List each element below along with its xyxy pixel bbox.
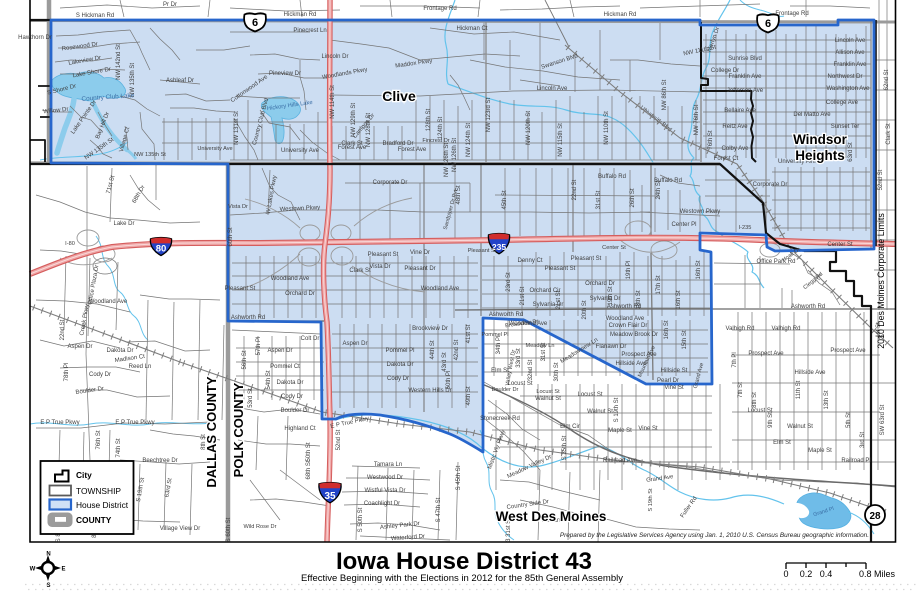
svg-text:2010 Des Moines Corporate Limi: 2010 Des Moines Corporate Limits [876,213,886,349]
svg-text:Flanawn Dr: Flanawn Dr [596,344,627,350]
svg-text:16th St: 16th St [676,290,682,309]
svg-text:35: 35 [324,491,336,502]
svg-text:Ashworth Rd: Ashworth Rd [489,312,523,318]
svg-text:Ashworth Rd: Ashworth Rd [231,315,265,321]
svg-text:Franklin Ave: Franklin Ave [834,62,868,68]
svg-text:NW 114th St: NW 114th St [330,85,336,119]
svg-text:Valhigh Rd: Valhigh Rd [772,326,801,332]
svg-text:Maple St: Maple St [608,428,632,434]
svg-text:DALLAS COUNTY: DALLAS COUNTY [204,376,219,488]
svg-text:21st St: 21st St [556,290,562,309]
svg-text:Clark St: Clark St [349,268,371,274]
svg-text:Walnut St: Walnut St [587,409,613,415]
svg-text:S 19th St: S 19th St [614,397,620,422]
svg-text:Village View Dr: Village View Dr [160,526,200,532]
svg-text:0.4: 0.4 [820,569,833,579]
svg-text:Clark St: Clark St [886,123,892,145]
svg-text:Vine St: Vine St [638,426,658,432]
svg-text:Valhigh Rd: Valhigh Rd [726,326,755,332]
svg-text:49th St: 49th St [466,386,472,405]
svg-text:Lincoln Ave: Lincoln Ave [835,38,866,44]
svg-text:Corporate Dr: Corporate Dr [373,180,408,186]
svg-text:31st St: 31st St [596,190,602,209]
svg-text:Beechtree Dr: Beechtree Dr [142,458,177,464]
svg-text:POLK COUNTY: POLK COUNTY [231,382,246,477]
svg-text:West Des Moines: West Des Moines [496,509,607,524]
svg-text:Lincoln Dr: Lincoln Dr [321,54,348,60]
svg-text:Dakota Dr: Dakota Dr [386,362,413,368]
svg-text:Heights: Heights [795,148,845,163]
svg-text:Aspen Dr: Aspen Dr [267,348,292,354]
svg-text:Boulder Dr: Boulder Dr [281,408,310,414]
svg-text:W: W [30,567,36,573]
svg-text:7th St: 7th St [738,382,744,398]
svg-text:22nd St: 22nd St [60,319,66,340]
svg-text:Meadow Ln: Meadow Ln [526,343,555,349]
svg-text:52nd St: 52nd St [878,169,884,190]
svg-text:College Ave: College Ave [826,100,859,106]
svg-text:Frontage Rd: Frontage Rd [775,11,808,17]
svg-text:COUNTY: COUNTY [76,515,112,525]
svg-text:City: City [76,470,92,480]
svg-text:E P True Pkwy: E P True Pkwy [40,420,79,426]
svg-text:Wild Rose Dr: Wild Rose Dr [244,524,277,530]
svg-text:Center St: Center St [602,245,626,251]
svg-text:Hickman Ct: Hickman Ct [456,26,487,32]
svg-text:Boulder Dr: Boulder Dr [492,387,519,393]
svg-text:50th Pl: 50th Pl [446,371,452,390]
svg-text:Orchard Dr: Orchard Dr [585,281,615,287]
svg-text:Westown Pkwy: Westown Pkwy [680,209,721,215]
svg-text:Center Pl: Center Pl [671,222,696,228]
svg-text:43rd St: 43rd St [442,352,448,372]
svg-text:Pleasant Dr: Pleasant Dr [404,266,435,272]
svg-text:Washington Ave: Washington Ave [826,86,870,92]
svg-text:Del Matto Ave: Del Matto Ave [793,112,831,118]
svg-text:Cody Dr: Cody Dr [89,372,111,378]
svg-text:Pleasant St: Pleasant St [571,256,602,262]
svg-text:Hickman Rd: Hickman Rd [284,12,317,18]
svg-text:Brookview Dr: Brookview Dr [412,326,448,332]
svg-text:Pearl Dr: Pearl Dr [657,378,679,384]
svg-text:Westwood Dr: Westwood Dr [367,475,403,481]
svg-text:S 50th St: S 50th St [358,507,364,532]
svg-text:Iowa House District 43: Iowa House District 43 [336,548,592,575]
svg-text:Ashworth Rd: Ashworth Rd [607,304,641,310]
svg-text:Pineview Dr: Pineview Dr [269,71,301,77]
svg-text:E P True Pkwy: E P True Pkwy [115,420,154,426]
svg-text:Pleasant St: Pleasant St [468,248,497,254]
svg-text:Hillside St: Hillside St [661,368,688,374]
svg-text:Pinecrest Ln: Pinecrest Ln [293,28,326,34]
svg-text:Colt Dr: Colt Dr [301,336,320,342]
svg-text:NW 123rd St: NW 123rd St [486,98,492,133]
svg-text:63rd St: 63rd St [848,142,854,162]
svg-text:52nd St: 52nd St [336,429,342,450]
svg-text:Effective Beginning with the E: Effective Beginning with the Elections i… [301,573,623,584]
svg-text:Hillside Ave: Hillside Ave [795,370,827,376]
svg-text:Forest Ave: Forest Ave [398,147,427,153]
svg-text:41st St: 41st St [466,324,472,343]
svg-text:Reitz Ave: Reitz Ave [722,124,748,130]
svg-text:28: 28 [869,511,881,522]
svg-text:76th St: 76th St [96,430,102,449]
svg-text:54th St: 54th St [266,370,272,389]
svg-text:Hickman Rd: Hickman Rd [604,12,637,18]
svg-text:NW 135th St: NW 135th St [134,152,166,158]
svg-text:5th St: 5th St [846,412,852,428]
svg-text:16th St: 16th St [664,320,670,339]
svg-text:45th St: 45th St [502,190,508,209]
svg-text:Ashleaf Dr: Ashleaf Dr [166,78,194,84]
svg-text:128th St: 128th St [426,108,432,131]
svg-text:32nd St: 32nd St [528,359,534,380]
svg-text:Lake Dr: Lake Dr [113,221,134,227]
svg-text:Pleasant St: Pleasant St [225,286,256,292]
svg-text:S Hickman Rd: S Hickman Rd [76,13,114,19]
svg-text:S 45th St: S 45th St [456,465,462,490]
svg-text:62nd St: 62nd St [884,69,890,90]
svg-text:NW 86th St: NW 86th St [662,79,668,110]
svg-text:NW 142nd St: NW 142nd St [116,44,122,80]
svg-text:College Dr: College Dr [711,68,739,74]
svg-text:I-80: I-80 [65,241,75,247]
svg-text:Prospect Ave: Prospect Ave [830,348,866,354]
svg-text:Woodland Ave: Woodland Ave [421,286,460,292]
svg-text:0: 0 [783,569,788,579]
svg-text:E: E [61,567,65,573]
svg-text:Allison Ave: Allison Ave [835,50,865,56]
svg-text:Crown Flair Dr: Crown Flair Dr [609,323,648,329]
svg-text:Sunset Ter: Sunset Ter [831,124,860,130]
svg-text:S 47th St: S 47th St [436,497,442,522]
svg-text:University Ave: University Ave [197,146,232,152]
svg-text:42nd St: 42nd St [454,339,460,360]
svg-text:Pleasant St: Pleasant St [545,266,576,272]
svg-text:University Ave: University Ave [281,148,320,154]
svg-text:Locust St: Locust St [536,389,560,395]
svg-text:74th St: 74th St [116,438,122,457]
svg-text:Woodland Ave: Woodland Ave [89,299,128,305]
svg-text:7th Pl: 7th Pl [732,352,738,367]
svg-text:Woodland Ave: Woodland Ave [271,276,310,282]
svg-text:78th Pl: 78th Pl [64,363,70,382]
svg-text:Vista Dr: Vista Dr [228,204,248,210]
svg-text:I-235: I-235 [739,225,752,231]
svg-text:60th St: 60th St [228,227,234,246]
svg-text:Elm Cir: Elm Cir [560,424,580,430]
svg-text:8th St: 8th St [752,392,758,408]
svg-text:Woodland Ave: Woodland Ave [606,316,645,322]
svg-text:Windsor: Windsor [793,132,848,147]
svg-text:Sylvania Dr: Sylvania Dr [590,296,621,302]
svg-text:50th St: 50th St [306,442,312,461]
svg-text:NW 120th St: NW 120th St [526,111,532,145]
svg-text:TOWNSHIP: TOWNSHIP [76,486,121,496]
svg-text:68th St: 68th St [306,460,312,479]
svg-text:Bellaire Ave: Bellaire Ave [724,108,756,114]
svg-text:6: 6 [252,17,258,29]
svg-text:NW 128th St: NW 128th St [366,113,372,147]
svg-text:21st St: 21st St [520,286,526,305]
svg-text:Pommel Pl: Pommel Pl [481,332,508,338]
svg-text:Tamara Ln: Tamara Ln [374,462,402,468]
svg-text:11th St: 11th St [796,380,802,399]
svg-text:24th St: 24th St [656,180,662,199]
svg-text:Vine Dr: Vine Dr [410,250,430,256]
svg-text:Center St: Center St [827,242,853,248]
svg-text:Dakota Dr: Dakota Dr [276,380,303,386]
svg-text:Franklin Ave: Franklin Ave [729,74,763,80]
svg-text:15th St: 15th St [682,330,688,349]
svg-text:Elm St: Elm St [773,440,791,446]
svg-text:Bradford Dr: Bradford Dr [382,141,413,147]
svg-text:Pleasant St: Pleasant St [368,252,399,258]
svg-text:NW 76th St: NW 76th St [694,104,700,135]
svg-text:20th St: 20th St [582,300,588,319]
svg-text:23rd St: 23rd St [506,272,512,292]
svg-text:NW 131st St: NW 131st St [234,111,240,145]
svg-text:Pommel Pl: Pommel Pl [385,348,414,354]
svg-text:Sunrise Blvd: Sunrise Blvd [728,56,762,62]
svg-text:Northwest Dr: Northwest Dr [827,74,862,80]
svg-text:Cody Dr: Cody Dr [387,376,409,382]
svg-text:34th Pl: 34th Pl [496,336,502,355]
svg-text:Meadow Brook Dr: Meadow Brook Dr [610,332,658,338]
svg-text:19th St: 19th St [608,286,614,305]
svg-text:Vine St: Vine St [664,385,684,391]
svg-text:57th Pl: 57th Pl [256,337,262,356]
svg-text:SW 63rd St: SW 63rd St [880,404,886,435]
svg-text:Prospect Ave: Prospect Ave [748,351,784,357]
svg-text:S 19th St: S 19th St [648,488,654,511]
svg-text:Forest Ct: Forest Ct [714,156,739,162]
svg-text:Hawthorn Dr: Hawthorn Dr [18,35,52,41]
svg-text:Clark St: Clark St [341,141,363,147]
svg-text:17th St: 17th St [656,275,662,294]
svg-text:Stonecreek Rd: Stonecreek Rd [480,416,520,422]
svg-text:Clive: Clive [382,88,416,104]
svg-text:N: N [46,552,50,558]
svg-text:Ashworth Rd: Ashworth Rd [791,304,825,310]
svg-text:22nd St: 22nd St [572,179,578,200]
svg-text:NW 110th St: NW 110th St [604,111,610,145]
svg-text:Corporate Dr: Corporate Dr [753,182,788,188]
svg-text:Denny Ct: Denny Ct [517,258,542,264]
svg-text:S 60th St: S 60th St [226,517,232,542]
svg-text:76th St: 76th St [708,130,714,149]
svg-text:13th St: 13th St [824,390,830,409]
svg-text:Aspen Dr: Aspen Dr [67,344,92,350]
svg-text:Prepared by the Legislative Se: Prepared by the Legislative Services Age… [560,532,869,539]
svg-text:Vista Dr: Vista Dr [369,264,390,270]
svg-text:16th St: 16th St [696,260,702,279]
svg-text:0.8 Miles: 0.8 Miles [859,569,896,579]
svg-text:Lincoln Ave: Lincoln Ave [537,86,568,92]
svg-text:80: 80 [156,244,167,255]
svg-text:6: 6 [765,18,771,30]
svg-text:Jefferson Ave: Jefferson Ave [727,88,764,94]
svg-text:Buffalo Rd: Buffalo Rd [598,174,626,180]
svg-text:Pommel Ct: Pommel Ct [270,364,300,370]
svg-text:NW 124th St: NW 124th St [466,123,472,157]
svg-text:56th St: 56th St [242,350,248,369]
svg-text:Aspen Dr: Aspen Dr [342,341,367,347]
svg-text:Railroad Pl: Railroad Pl [841,458,870,464]
svg-text:Walnut St: Walnut St [787,424,813,430]
svg-text:S 35th St: S 35th St [562,435,568,460]
svg-text:44th St: 44th St [430,340,436,359]
svg-text:Highland Ct: Highland Ct [284,426,316,432]
svg-text:Colby Ave: Colby Ave [722,146,750,152]
svg-text:0.2: 0.2 [800,569,813,579]
svg-text:NW 126th St: NW 126th St [444,143,450,177]
svg-text:NW 129th St: NW 129th St [351,103,357,137]
svg-text:House District: House District [76,500,129,510]
svg-text:Dakota Dr: Dakota Dr [106,348,133,354]
svg-text:Railroad Ave: Railroad Ave [603,458,638,464]
svg-text:124th St: 124th St [438,116,444,139]
svg-text:30th St: 30th St [554,362,560,381]
svg-text:3rd St: 3rd St [860,432,866,448]
svg-text:Walnut St: Walnut St [535,396,561,402]
svg-text:53rd St: 53rd St [248,388,254,408]
svg-text:Frontage Rd: Frontage Rd [423,6,456,12]
svg-text:Maple St: Maple St [808,448,832,454]
svg-text:26th St: 26th St [630,188,636,207]
svg-text:Pr Dr: Pr Dr [163,2,177,8]
svg-text:Reed Ln: Reed Ln [129,364,152,370]
svg-text:9th St: 9th St [768,412,774,428]
svg-text:Coachlight Dr: Coachlight Dr [364,501,400,507]
svg-text:Locust St: Locust St [577,392,602,398]
svg-text:NW 126th St: NW 126th St [452,138,458,172]
svg-text:Cody Dr: Cody Dr [281,394,303,400]
svg-text:19th Pl: 19th Pl [626,261,632,280]
svg-text:NW 115th St: NW 115th St [558,123,564,157]
svg-text:Wistful Vista Dr: Wistful Vista Dr [365,488,406,494]
svg-text:Orchard Dr: Orchard Dr [285,291,315,297]
